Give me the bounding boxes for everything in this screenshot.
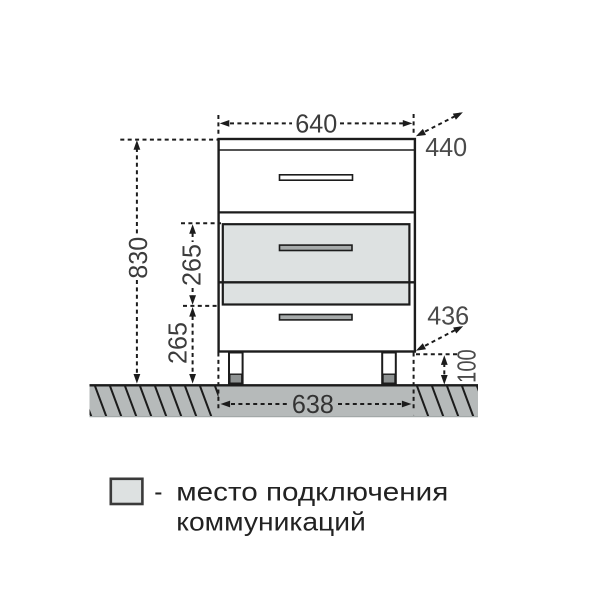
svg-text:265: 265	[163, 322, 193, 364]
svg-text:-: -	[154, 477, 162, 507]
svg-text:640: 640	[295, 109, 337, 139]
svg-text:830: 830	[123, 237, 153, 279]
svg-text:место подключения: место подключения	[176, 477, 448, 507]
svg-text:436: 436	[427, 301, 469, 331]
svg-text:265: 265	[177, 244, 207, 286]
svg-text:440: 440	[425, 132, 467, 162]
svg-text:100: 100	[451, 349, 481, 383]
svg-text:638: 638	[292, 389, 334, 419]
svg-text:коммуникаций: коммуникаций	[176, 507, 366, 537]
